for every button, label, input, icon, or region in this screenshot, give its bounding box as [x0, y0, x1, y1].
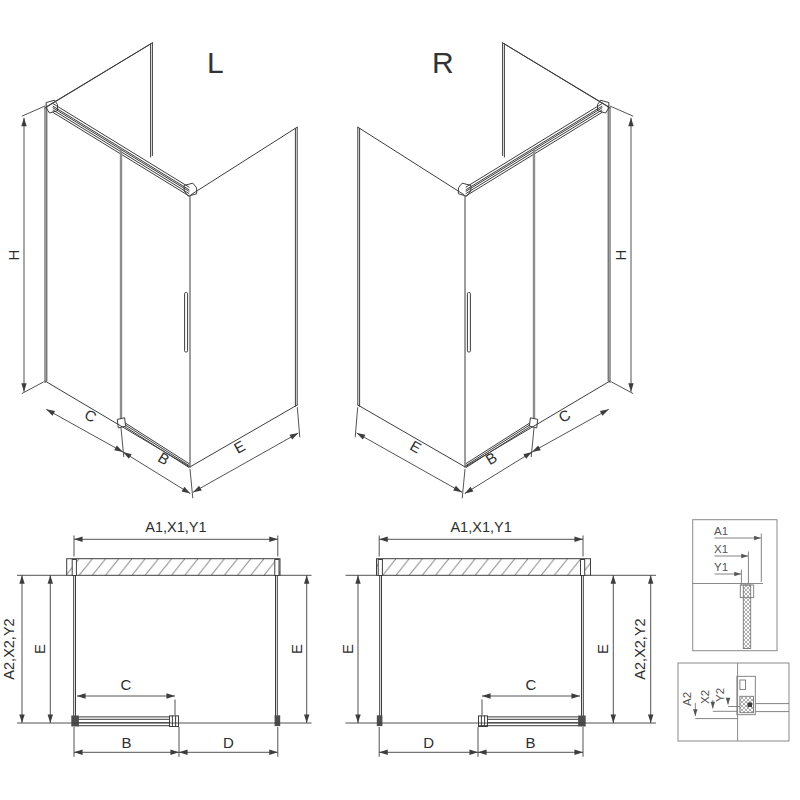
dim-label-c-right-plan: C [526, 676, 537, 693]
dim-label-a2-right-plan: A2,X2,Y2 [632, 618, 648, 679]
plan-left-dimensions: A1,X1,Y1 A2,X2,Y2 E E C B D [1, 519, 312, 757]
dim-label-b-right-plan: B [525, 734, 535, 751]
dim-label-b-left-plan: B [121, 734, 131, 751]
door-handle-right [467, 293, 470, 353]
plan-right-glass-panels [377, 576, 584, 727]
iso-view-left: L [5, 43, 300, 499]
door-handle-left [185, 293, 188, 353]
dim-label-e-right-left-plan: E [288, 644, 305, 654]
dim-label-c-right: C [555, 406, 573, 426]
shower-enclosure-technical-drawing: L [0, 0, 800, 800]
detail-box-floor-rail: A2 X2 Y2 [678, 663, 789, 741]
plan-left-rail-assembly [71, 716, 178, 727]
detail-label-y1: Y1 [714, 561, 728, 573]
dim-label-c-left: C [82, 406, 100, 426]
drawing-svg: L [0, 0, 800, 800]
detail-label-x1: X1 [714, 543, 728, 555]
dim-label-d-left-plan: D [223, 734, 234, 751]
iso-left-side-panel [45, 43, 152, 383]
dim-label-height-right: H [612, 250, 629, 261]
plan-view-right: A1,X1,Y1 E E A2,X2,Y2 C D B [339, 519, 657, 757]
detail-label-a2: A2 [681, 692, 693, 706]
detail-label-y2: Y2 [714, 688, 726, 702]
dim-label-d-right-plan: D [423, 734, 434, 751]
dim-label-e-inner-left-plan: E [31, 644, 48, 654]
dim-label-a1-right-plan: A1,X1,Y1 [450, 519, 511, 535]
dim-label-b-right: B [482, 448, 499, 468]
detail-label-a1: A1 [714, 525, 728, 537]
iso-left-sliding-door [121, 150, 188, 422]
bathroom-wall-left-plan [67, 559, 280, 576]
plan-view-left: A1,X1,Y1 A2,X2,Y2 E E C B D [1, 519, 312, 757]
variant-label-right: R [432, 46, 454, 79]
wall-profile-section [743, 585, 750, 649]
plan-right-dimensions: A1,X1,Y1 E E A2,X2,Y2 C D B [339, 519, 657, 757]
bathroom-wall-right-plan [377, 559, 591, 576]
plan-left-glass-panels [74, 576, 281, 727]
dim-label-e-left: E [231, 437, 248, 457]
iso-right-sliding-door [467, 150, 534, 422]
dim-label-height-left: H [5, 250, 22, 261]
rail-glass-section [748, 703, 753, 708]
dim-label-a2-left-plan: A2,X2,Y2 [1, 618, 17, 679]
iso-right-side-panel [503, 43, 610, 383]
detail-label-x2: X2 [699, 690, 711, 704]
iso-right-dimensions: H E B C [355, 106, 633, 499]
plan-right-rail-assembly [479, 716, 586, 727]
dim-label-c-left-plan: C [121, 676, 132, 693]
dim-label-e-right: E [407, 437, 424, 457]
dim-label-e-left-right-plan: E [339, 644, 356, 654]
dim-label-e-inner-right-plan: E [594, 644, 611, 654]
dim-label-a1-left-plan: A1,X1,Y1 [145, 519, 206, 535]
iso-view-right: R [355, 43, 633, 499]
detail-box-wall-profile: A1 X1 Y1 [693, 520, 777, 651]
variant-label-left: L [207, 46, 224, 79]
dim-label-b-left: B [155, 448, 172, 468]
